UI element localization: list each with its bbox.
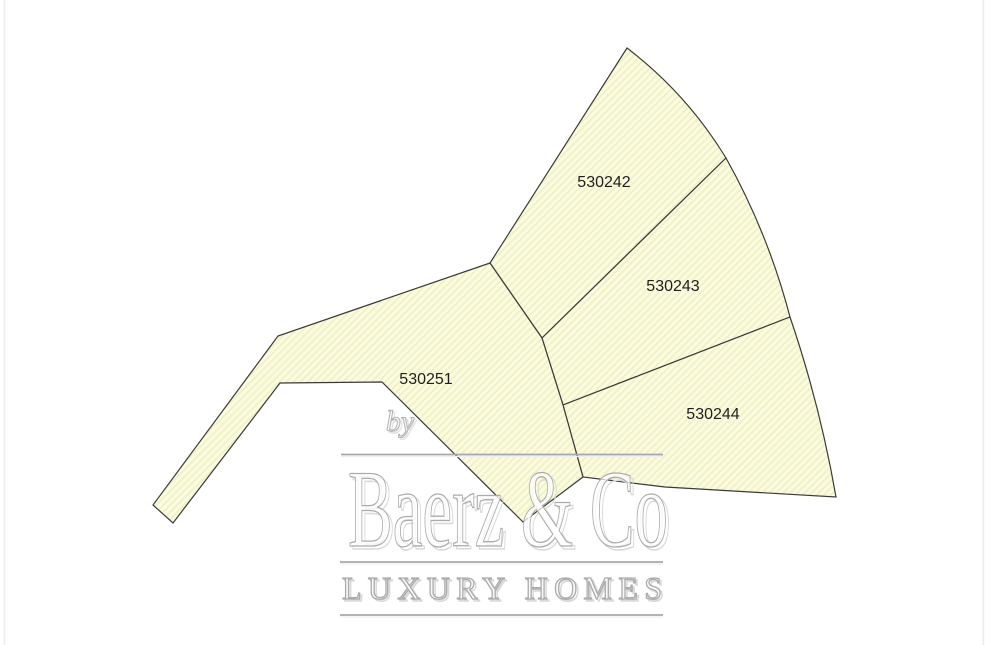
parcel-map-svg: 530242 530243 530244 530251 by by Baerz … — [0, 0, 1000, 645]
watermark-by: by — [386, 405, 415, 438]
watermark-brand: Baerz & Co — [348, 448, 668, 570]
plot-map-page: 530242 530243 530244 530251 by by Baerz … — [0, 0, 1000, 645]
parcel-label-530251: 530251 — [399, 371, 452, 388]
parcel-label-530242: 530242 — [577, 174, 630, 191]
parcel-label-530243: 530243 — [646, 278, 699, 295]
parcel-label-530244: 530244 — [686, 406, 739, 423]
watermark-tagline: LUXURY HOMES — [342, 570, 662, 606]
